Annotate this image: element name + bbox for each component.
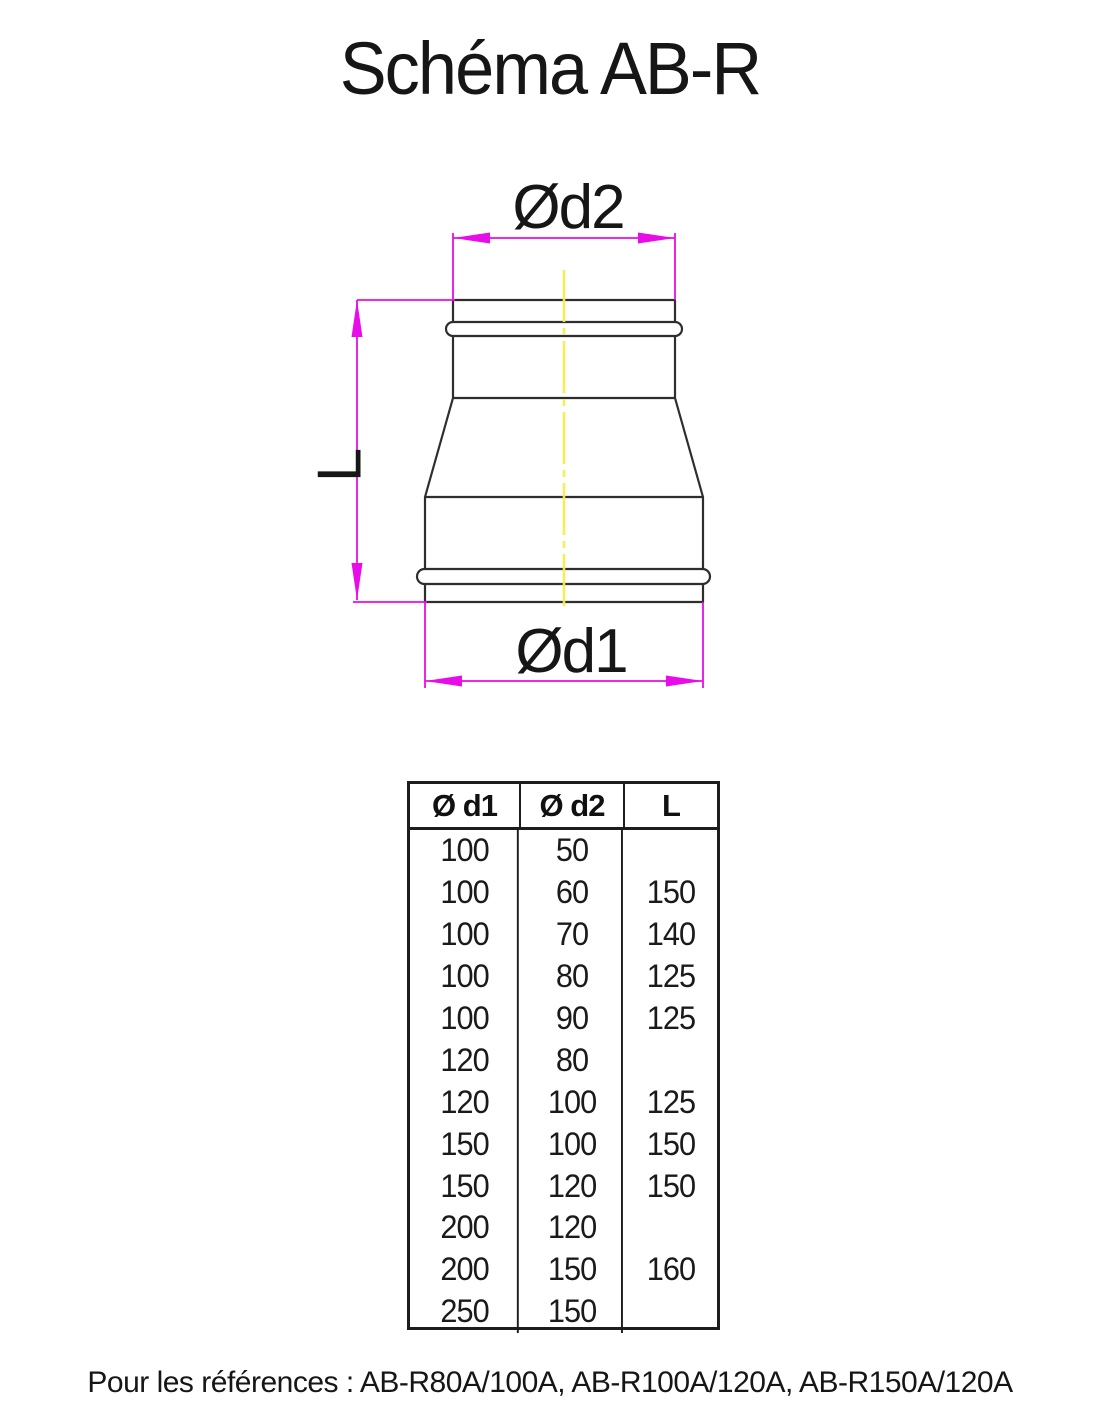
- table-cell: [627, 1291, 715, 1333]
- table-cell: 120: [412, 1039, 519, 1081]
- table-cell: 120: [523, 1165, 623, 1207]
- table-cell: 160: [627, 1249, 715, 1291]
- table-cell: 140: [627, 914, 715, 956]
- table-cell: 100: [412, 998, 519, 1040]
- table-cell: 80: [523, 956, 623, 998]
- d1-label: Ød1: [515, 617, 626, 686]
- table-cell: 150: [627, 1123, 715, 1165]
- table-header-d1: Ø d1: [410, 784, 521, 830]
- table-cell: 150: [627, 1165, 715, 1207]
- table-cell: 100: [412, 956, 519, 998]
- table-cell: 150: [523, 1291, 623, 1333]
- d2-label: Ød2: [512, 173, 623, 242]
- table-cell: 70: [523, 914, 623, 956]
- table-cell: 200: [412, 1249, 519, 1291]
- table-cell: [627, 830, 715, 872]
- table-cell: 80: [523, 1039, 623, 1081]
- table-cell: 100: [523, 1081, 623, 1123]
- table-cell: [627, 1039, 715, 1081]
- table-cell: 125: [627, 998, 715, 1040]
- table-cell: 50: [523, 830, 623, 872]
- table-cell: 125: [627, 1081, 715, 1123]
- table-cell: 150: [523, 1249, 623, 1291]
- table-cell: 100: [523, 1123, 623, 1165]
- table-cell: 200: [412, 1207, 519, 1249]
- table-cell: 250: [412, 1291, 519, 1333]
- table-cell: 150: [627, 872, 715, 914]
- table-cell: 125: [627, 956, 715, 998]
- table-cell: 100: [412, 914, 519, 956]
- table-cell: 150: [412, 1165, 519, 1207]
- table-header-l: L: [625, 784, 717, 830]
- table-cell: 60: [523, 872, 623, 914]
- table-cell: 120: [523, 1207, 623, 1249]
- length-label: L: [306, 449, 375, 482]
- table-header-d2: Ø d2: [521, 784, 625, 830]
- table-cell: 120: [412, 1081, 519, 1123]
- table-cell: [627, 1207, 715, 1249]
- table-cell: 100: [412, 872, 519, 914]
- technical-drawing: Ød2 L Ød1: [0, 0, 1100, 760]
- references-note: Pour les références : AB-R80A/100A, AB-R…: [0, 1366, 1100, 1400]
- dimensions-table: Ø d1 Ø d2 L 1005010060150100701401008012…: [407, 781, 720, 1330]
- table-cell: 90: [523, 998, 623, 1040]
- table-cell: 100: [412, 830, 519, 872]
- table-cell: 150: [412, 1123, 519, 1165]
